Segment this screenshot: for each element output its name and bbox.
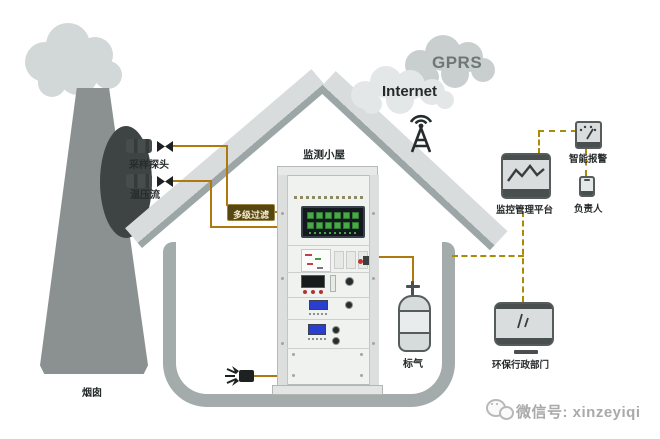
signal-platform-up	[538, 131, 540, 154]
temp-pressure-flow-label: 温压流	[130, 186, 160, 201]
cabinet-control-screen	[301, 206, 365, 238]
sampling-probe-label: 采样探头	[129, 156, 169, 171]
cabinet-top-cap	[278, 167, 377, 176]
pipe-calgas-h	[376, 256, 414, 258]
analyzer-cabinet	[277, 166, 378, 385]
standard-gas-label: 标气	[403, 355, 423, 370]
responsible-person-label: 负责人	[574, 201, 603, 215]
cabinet-base	[272, 385, 383, 395]
smart-alarm-label: 智能报警	[569, 151, 607, 165]
probe-valve-icon	[156, 140, 174, 153]
monitoring-platform-icon	[501, 153, 551, 199]
monitoring-platform-label: 监控管理平台	[496, 202, 553, 216]
signal-to-alarm	[538, 130, 577, 132]
cabinet-left-rail	[278, 175, 288, 385]
env-dept-monitor-stand	[514, 350, 538, 354]
env-dept-monitor-icon	[494, 302, 554, 346]
pipe-sample-v1	[226, 145, 228, 206]
standard-gas-cylinder	[398, 295, 431, 352]
gas-cylinder-valve-cross	[406, 285, 420, 288]
cems-diagram: 多级过滤	[0, 0, 660, 439]
pipe-sample-h1	[172, 145, 228, 147]
sampling-probe-icon	[126, 139, 152, 153]
internet-label: Internet	[382, 83, 437, 100]
gas-cylinder-valve	[411, 281, 414, 296]
responsible-person-phone-icon	[579, 176, 595, 197]
pipe-tpf-v	[210, 180, 212, 228]
gprs-label: GPRS	[432, 53, 482, 73]
signal-shelter-to-platform	[452, 255, 524, 257]
signal-platform-down	[522, 211, 524, 302]
pipe-tpf-h1	[172, 180, 212, 182]
watermark-text: 微信号: xinzeyiqi	[516, 401, 641, 422]
pipe-tpf-h2	[210, 226, 280, 228]
multi-stage-filter-label: 多级过滤	[233, 210, 269, 220]
cabinet-lcd-1	[309, 300, 328, 310]
cabinet-black-display	[301, 275, 325, 288]
cabinet-lcd-2	[308, 324, 326, 335]
antenna-icon	[403, 108, 439, 154]
chimney-label: 烟囱	[82, 384, 102, 399]
vent-valve-icon	[224, 362, 258, 389]
env-admin-department-label: 环保行政部门	[492, 357, 549, 371]
monitoring-shelter-label: 监测小屋	[303, 147, 345, 162]
cabinet-right-rail	[369, 175, 379, 385]
cabinet-nameplate	[294, 196, 363, 199]
cabinet-flowmeter	[330, 275, 336, 292]
pipe-calgas-v	[412, 256, 414, 284]
multi-stage-filter-box: 多级过滤	[227, 204, 275, 221]
cabinet-switch	[363, 256, 369, 265]
smart-alarm-icon	[575, 121, 602, 149]
cabinet-recorder-paper	[301, 249, 331, 272]
